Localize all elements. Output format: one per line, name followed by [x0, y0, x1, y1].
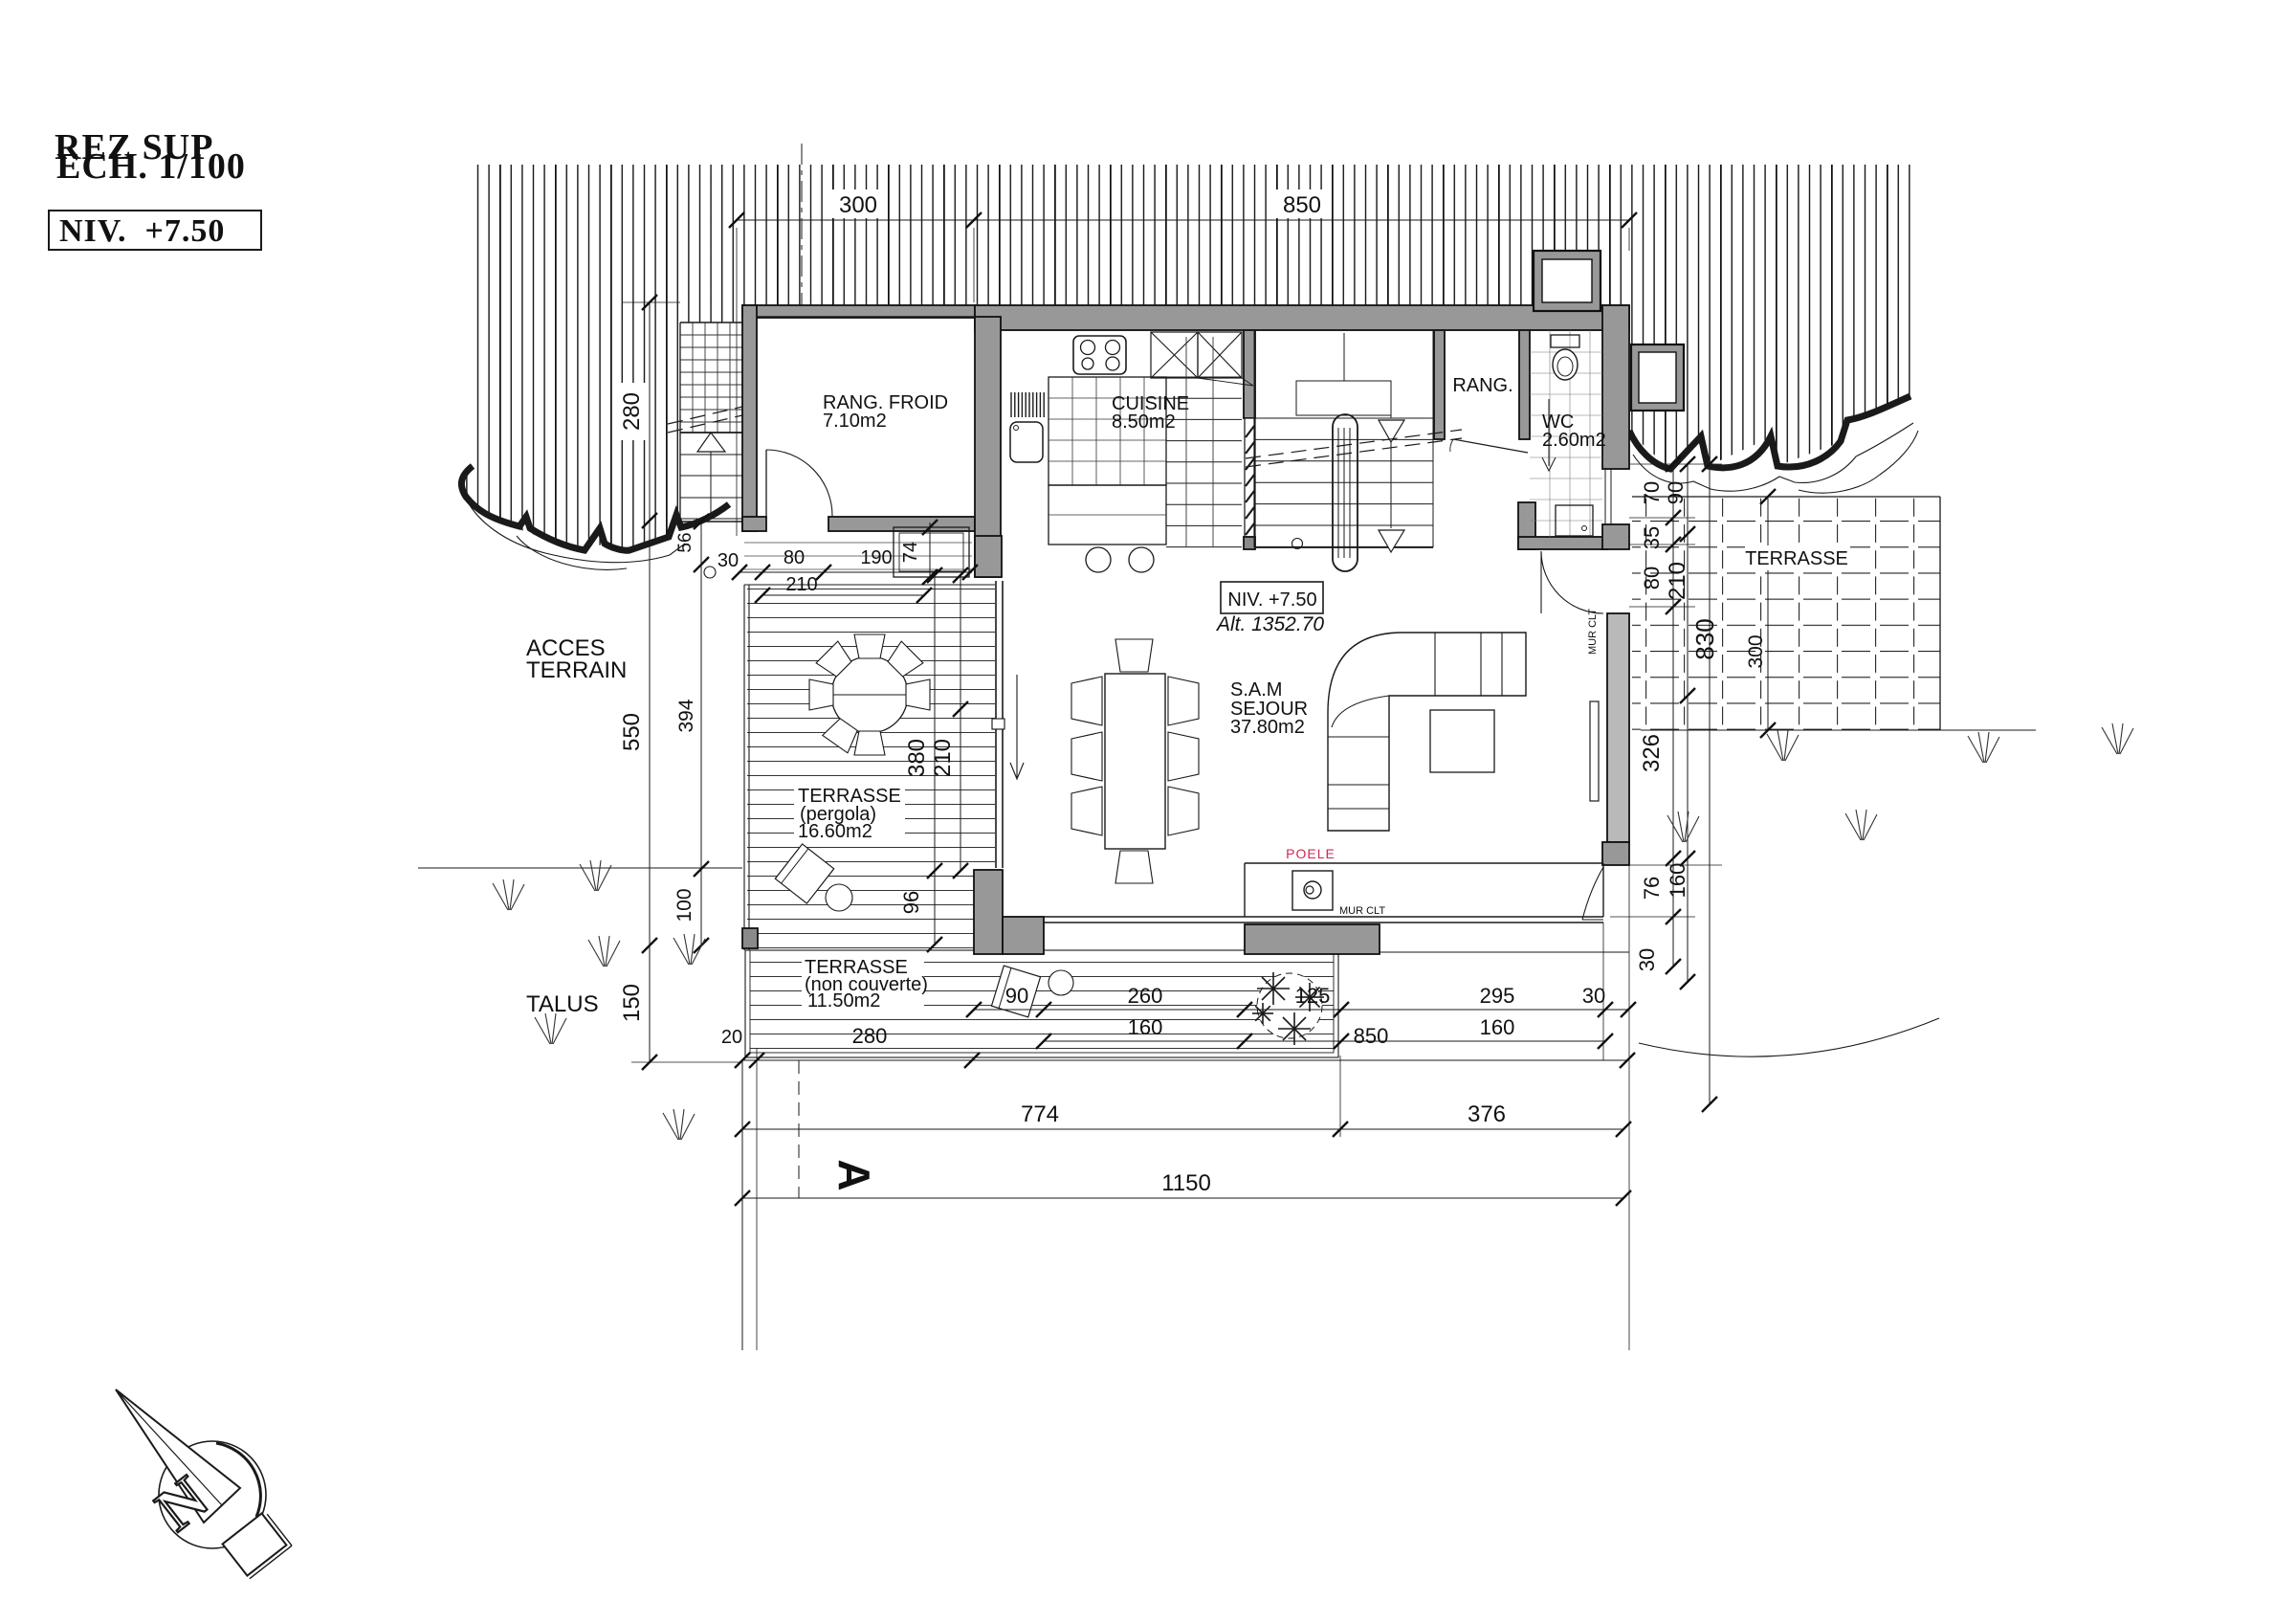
svg-text:8.50m2: 8.50m2	[1112, 411, 1176, 433]
svg-text:830: 830	[1690, 618, 1719, 659]
svg-text:774: 774	[1021, 1101, 1059, 1127]
svg-text:550: 550	[619, 713, 645, 751]
svg-text:76: 76	[1640, 877, 1664, 900]
svg-text:210: 210	[930, 739, 956, 777]
svg-text:326: 326	[1639, 734, 1665, 772]
svg-text:30: 30	[1582, 984, 1605, 1008]
svg-text:380: 380	[904, 739, 930, 777]
svg-text:160: 160	[1480, 1015, 1515, 1039]
svg-text:MUR CLT: MUR CLT	[1339, 905, 1385, 917]
svg-text:74: 74	[900, 542, 921, 563]
svg-text:160: 160	[1128, 1015, 1163, 1039]
svg-text:MUR CLT: MUR CLT	[1587, 609, 1599, 655]
svg-text:NIV. +7.50: NIV. +7.50	[59, 213, 225, 249]
svg-text:210: 210	[785, 574, 817, 595]
svg-text:850: 850	[1354, 1024, 1389, 1048]
svg-text:280: 280	[852, 1024, 888, 1048]
svg-text:2.60m2: 2.60m2	[1542, 430, 1606, 451]
svg-text:7.10m2: 7.10m2	[823, 411, 887, 432]
svg-text:90: 90	[1664, 481, 1688, 504]
svg-text:125: 125	[1295, 984, 1331, 1008]
svg-text:80: 80	[784, 547, 805, 568]
svg-text:POELE: POELE	[1286, 846, 1336, 861]
svg-text:30: 30	[1635, 948, 1659, 971]
svg-text:280: 280	[619, 392, 645, 431]
svg-text:TERRAIN: TERRAIN	[526, 657, 627, 683]
svg-text:394: 394	[675, 699, 697, 732]
svg-text:160: 160	[1666, 863, 1689, 899]
svg-text:210: 210	[1665, 562, 1690, 600]
svg-text:295: 295	[1480, 984, 1515, 1008]
svg-text:S.A.M: S.A.M	[1230, 679, 1282, 700]
svg-text:70: 70	[1640, 481, 1664, 504]
svg-text:90: 90	[1005, 984, 1028, 1008]
svg-text:1150: 1150	[1161, 1170, 1211, 1196]
svg-text:56: 56	[675, 532, 695, 552]
svg-text:Alt. 1352.70: Alt. 1352.70	[1215, 613, 1324, 635]
svg-text:TERRASSE: TERRASSE	[1745, 548, 1848, 569]
svg-text:96: 96	[899, 891, 923, 914]
svg-text:11.50m2: 11.50m2	[807, 990, 880, 1012]
svg-text:150: 150	[619, 984, 645, 1022]
svg-text:A: A	[829, 1159, 879, 1190]
svg-text:100: 100	[673, 888, 695, 922]
svg-text:190: 190	[860, 547, 892, 568]
svg-text:30: 30	[717, 550, 739, 571]
svg-text:376: 376	[1468, 1101, 1506, 1127]
svg-text:37.80m2: 37.80m2	[1230, 717, 1305, 738]
svg-text:80: 80	[1640, 567, 1664, 589]
svg-text:300: 300	[839, 192, 877, 218]
svg-text:TALUS: TALUS	[526, 991, 599, 1017]
svg-text:300: 300	[1745, 634, 1767, 668]
svg-text:NIV. +7.50: NIV. +7.50	[1227, 589, 1316, 611]
svg-text:RANG.: RANG.	[1452, 375, 1512, 396]
svg-text:ECH. 1/100: ECH. 1/100	[56, 146, 246, 187]
svg-text:16.60m2: 16.60m2	[798, 821, 872, 842]
svg-text:35: 35	[1640, 526, 1664, 549]
svg-text:850: 850	[1283, 192, 1321, 218]
svg-text:260: 260	[1128, 984, 1163, 1008]
svg-text:20: 20	[721, 1027, 742, 1048]
